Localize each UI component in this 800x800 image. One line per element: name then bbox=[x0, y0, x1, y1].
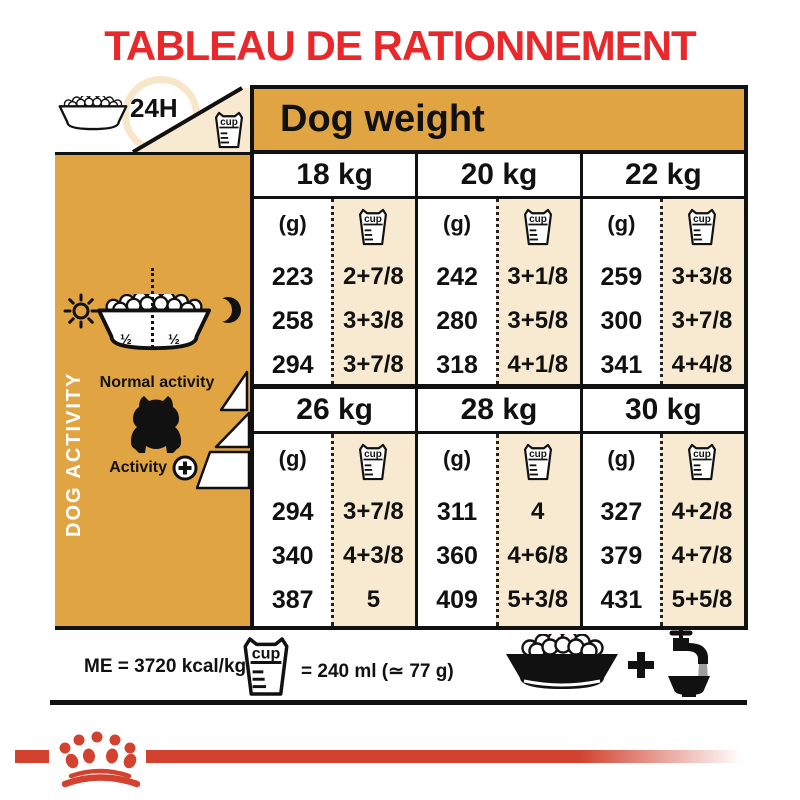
cups-value: 4+7/8 bbox=[660, 534, 744, 578]
kibble-bowl-icon bbox=[500, 634, 624, 696]
cups-value: 3+7/8 bbox=[331, 490, 415, 534]
bowl-half-left: ½ bbox=[111, 331, 141, 347]
ration-column: (g) 2593+3/8 3003+7/8 3414+4/8 bbox=[580, 199, 744, 384]
cups-value: 3+3/8 bbox=[331, 299, 415, 343]
grams-value: 409 bbox=[418, 578, 495, 622]
activity-level-triangles bbox=[195, 367, 252, 493]
cup-icon bbox=[241, 637, 291, 696]
ration-subtable-1: (g) 2232+7/8 2583+3/8 2943+7/8 (g) 2423+… bbox=[254, 199, 744, 389]
cups-value: 4+6/8 bbox=[496, 534, 580, 578]
plus-icon bbox=[627, 651, 655, 679]
cups-value: 5+5/8 bbox=[660, 578, 744, 622]
bulldog-icon bbox=[127, 393, 185, 455]
grams-value: 327 bbox=[583, 490, 660, 534]
cup-icon bbox=[358, 208, 388, 246]
ration-subtable-2: (g) 2943+7/8 3404+3/8 3875 (g) 3114 3604… bbox=[254, 434, 744, 626]
cups-value: 4+2/8 bbox=[660, 490, 744, 534]
grams-value: 387 bbox=[254, 578, 331, 622]
dog-weight-header: Dog weight bbox=[254, 89, 744, 154]
weight-header-row-1: 18 kg 20 kg 22 kg bbox=[254, 154, 744, 199]
grams-value: 300 bbox=[583, 299, 660, 343]
weight-header: 30 kg bbox=[580, 389, 744, 431]
cup-icon bbox=[687, 208, 717, 246]
food-bowl-icon bbox=[58, 96, 128, 133]
cups-value: 4 bbox=[496, 490, 580, 534]
weight-header: 18 kg bbox=[254, 154, 415, 196]
cup-icon bbox=[687, 443, 717, 481]
weight-header: 28 kg bbox=[415, 389, 579, 431]
weight-header-row-2: 26 kg 28 kg 30 kg bbox=[254, 389, 744, 434]
ration-chart-page: cup TABLEAU DE RATIONNEMENT bbox=[0, 0, 800, 800]
metabolizable-energy-label: ME = 3720 kcal/kg bbox=[84, 656, 246, 678]
ration-column: (g) 3274+2/8 3794+7/8 4315+5/8 bbox=[580, 434, 744, 626]
cups-value: 3+1/8 bbox=[496, 255, 580, 299]
weight-header: 20 kg bbox=[415, 154, 579, 196]
cups-value: 2+7/8 bbox=[331, 255, 415, 299]
grams-value: 341 bbox=[583, 343, 660, 387]
weight-header: 22 kg bbox=[580, 154, 744, 196]
cups-value: 4+3/8 bbox=[331, 534, 415, 578]
cups-value: 4+4/8 bbox=[660, 343, 744, 387]
cups-value: 4+1/8 bbox=[496, 343, 580, 387]
cups-value: 5+3/8 bbox=[496, 578, 580, 622]
cups-value: 3+7/8 bbox=[331, 343, 415, 387]
ration-table: Dog weight 18 kg 20 kg 22 kg (g) 2232+7/… bbox=[250, 85, 748, 630]
grams-value: 294 bbox=[254, 490, 331, 534]
page-title: TABLEAU DE RATIONNEMENT bbox=[0, 22, 800, 70]
sidebar-vertical-label: DOG ACTIVITY bbox=[63, 365, 86, 537]
grams-value: 379 bbox=[583, 534, 660, 578]
grams-value: 360 bbox=[418, 534, 495, 578]
cups-value: 3+3/8 bbox=[660, 255, 744, 299]
faucet-water-icon bbox=[656, 628, 716, 698]
gram-unit-label: (g) bbox=[418, 434, 495, 484]
brand-band-left bbox=[15, 750, 49, 763]
grams-value: 258 bbox=[254, 299, 331, 343]
grams-value: 431 bbox=[583, 578, 660, 622]
moon-icon bbox=[213, 294, 241, 326]
ration-column: (g) 3114 3604+6/8 4095+3/8 bbox=[415, 434, 579, 626]
gram-unit-label: (g) bbox=[254, 434, 331, 484]
bowl-half-right: ½ bbox=[159, 331, 189, 347]
cups-value: 5 bbox=[331, 578, 415, 622]
grams-value: 311 bbox=[418, 490, 495, 534]
grams-value: 259 bbox=[583, 255, 660, 299]
cup-equivalence-label: = 240 ml (≃ 77 g) bbox=[301, 660, 454, 683]
grams-value: 242 bbox=[418, 255, 495, 299]
dog-activity-sidebar: DOG ACTIVITY ½ ½ Normal activity bbox=[55, 152, 250, 630]
divider-line bbox=[50, 700, 747, 705]
cup-icon bbox=[358, 443, 388, 481]
gram-unit-label: (g) bbox=[583, 199, 660, 249]
grams-value: 340 bbox=[254, 534, 331, 578]
ration-column: (g) 2423+1/8 2803+5/8 3184+1/8 bbox=[415, 199, 579, 384]
cup-icon bbox=[523, 208, 553, 246]
cup-icon bbox=[523, 443, 553, 481]
royal-canin-crown-logo bbox=[56, 724, 144, 790]
gram-unit-label: (g) bbox=[583, 434, 660, 484]
sun-icon bbox=[63, 293, 99, 329]
grams-value: 318 bbox=[418, 343, 495, 387]
activity-plus-label: Activity bbox=[105, 459, 167, 477]
bowl-split-dotted-line bbox=[151, 268, 154, 348]
ration-column: (g) 2232+7/8 2583+3/8 2943+7/8 bbox=[254, 199, 415, 384]
weight-header: 26 kg bbox=[254, 389, 415, 431]
gram-unit-label: (g) bbox=[254, 199, 331, 249]
brand-band-right bbox=[146, 750, 748, 763]
cup-icon bbox=[214, 111, 244, 149]
ration-column: (g) 2943+7/8 3404+3/8 3875 bbox=[254, 434, 415, 626]
cups-value: 3+7/8 bbox=[660, 299, 744, 343]
grams-value: 294 bbox=[254, 343, 331, 387]
grams-value: 280 bbox=[418, 299, 495, 343]
cups-value: 3+5/8 bbox=[496, 299, 580, 343]
daily-ration-label: 24H bbox=[130, 93, 178, 124]
gram-unit-label: (g) bbox=[418, 199, 495, 249]
grams-value: 223 bbox=[254, 255, 331, 299]
